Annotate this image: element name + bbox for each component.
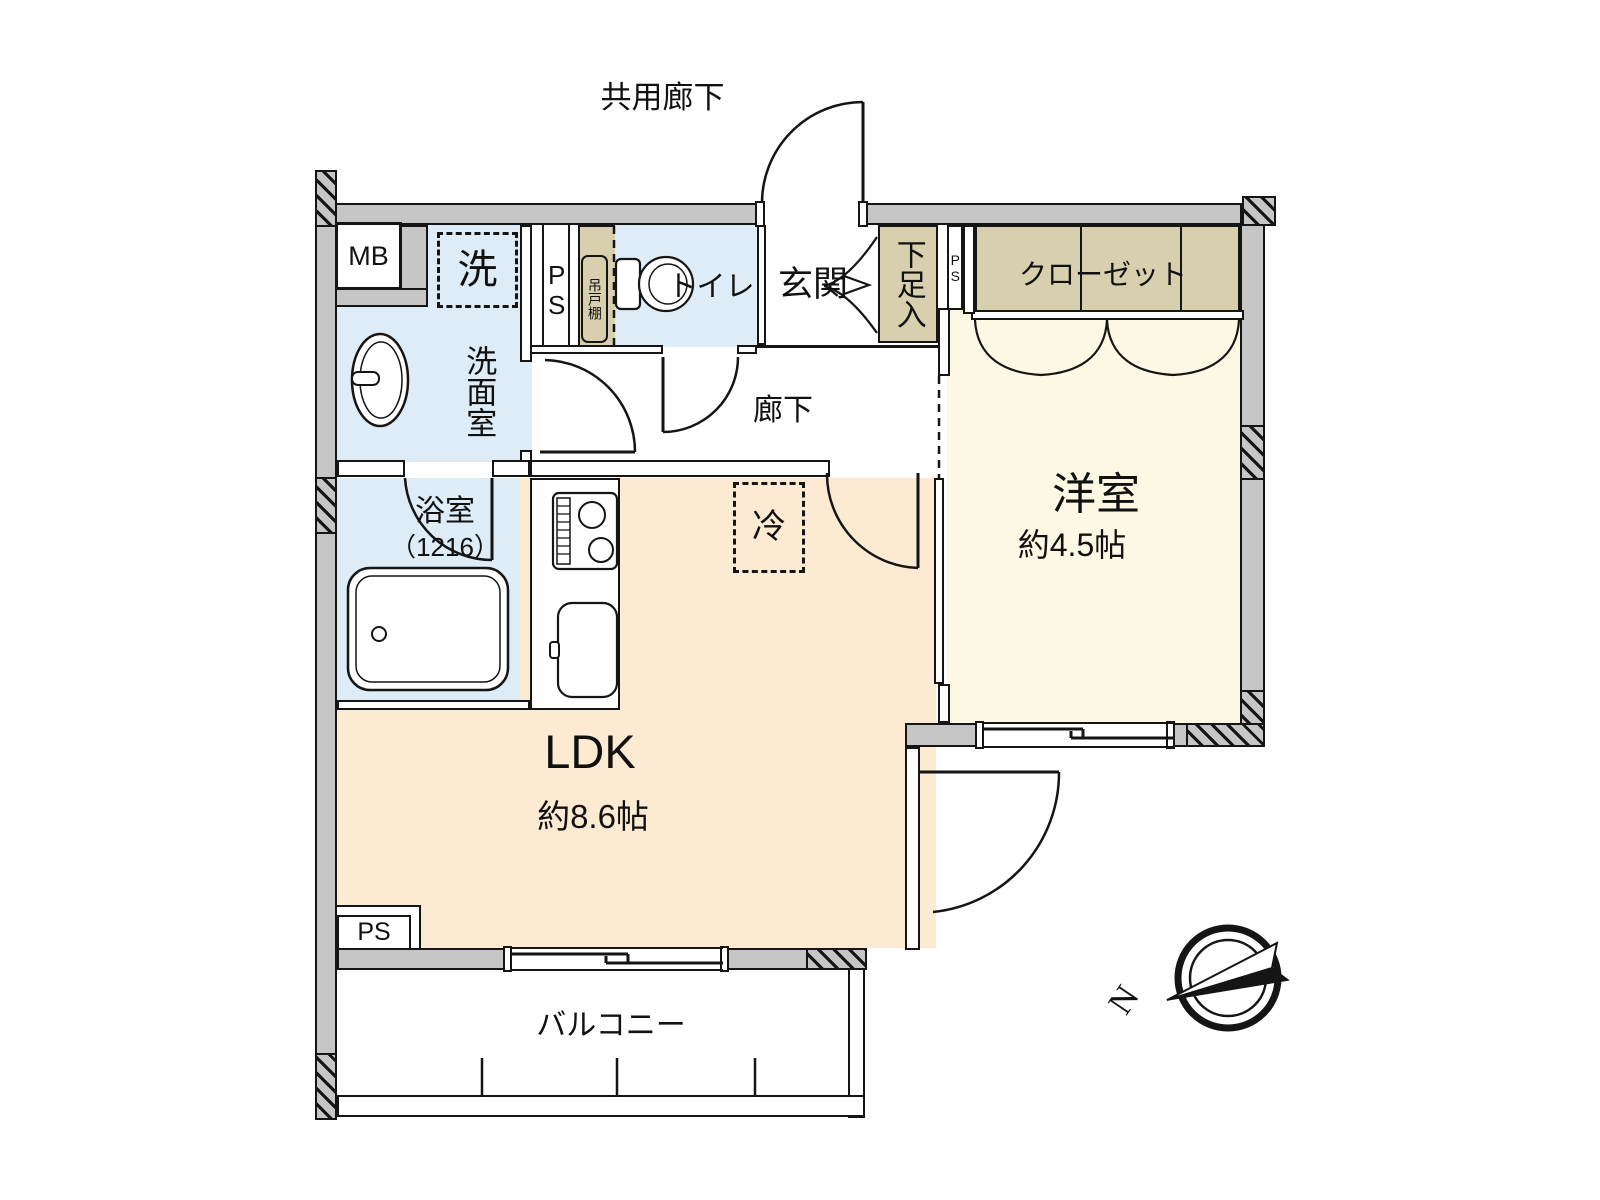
pipe-space-small-label: PS [947, 240, 963, 296]
washroom-door-swing [540, 360, 635, 452]
meter-box-label: MB [335, 224, 402, 288]
hallway-label: 廊下 [728, 393, 838, 429]
balcony-label: バルコニー [528, 1008, 694, 1044]
common-corridor-label: 共用廊下 [575, 80, 750, 116]
kitchen-sink-icon [550, 603, 617, 697]
floorplan-graphics [0, 0, 1600, 1200]
bathtub-icon [348, 568, 508, 690]
ldk-door-swing [827, 473, 918, 568]
toilet-door-swing [663, 357, 738, 432]
entrance-label: 玄関 [765, 264, 861, 306]
ldk-side-door-swing [919, 772, 1059, 912]
ldk-size-label: 約8.6帖 [513, 798, 673, 836]
closet-label: クローゼット [1000, 258, 1206, 292]
bathroom-label: 浴室 [405, 495, 485, 529]
entry-door-swing [762, 102, 863, 203]
western-sliding-window [982, 723, 1173, 747]
folding-closet-doors [975, 320, 1239, 375]
stove-icon [553, 493, 617, 569]
pipe-space-left-label: PS [543, 250, 569, 330]
compass-north-icon [1167, 928, 1288, 1028]
balcony-dividers [482, 1058, 755, 1097]
floor-plan: 洗 冷 吊戸棚 [0, 0, 1600, 1200]
ldk-label: LDK [515, 726, 665, 778]
western-room-label: 洋室 [1042, 470, 1150, 520]
bathroom-size-label: （1216） [385, 533, 505, 563]
shoe-cabinet-label: 下足入 [884, 230, 932, 338]
pipe-space-bottom-label: PS [339, 917, 409, 948]
washroom-label: 洗面室 [460, 328, 496, 454]
ldk-sliding-window [510, 948, 723, 970]
toilet-label: トイレ [665, 270, 757, 304]
washbasin-icon [352, 334, 408, 426]
western-room-size-label: 約4.5帖 [987, 528, 1157, 564]
